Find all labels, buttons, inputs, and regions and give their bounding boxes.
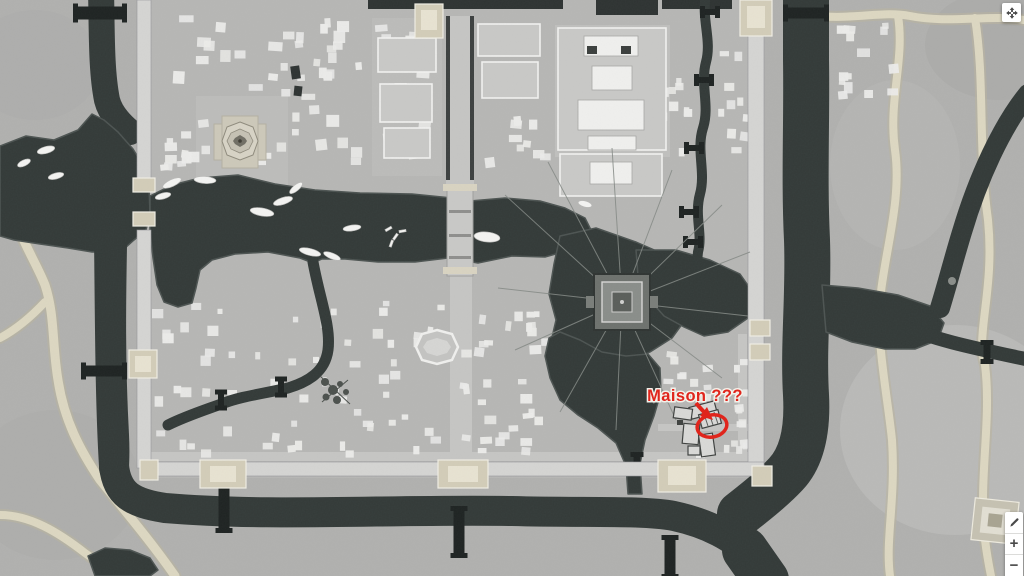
fullscreen-arrows-icon — [1006, 7, 1018, 19]
edit-button[interactable] — [1005, 512, 1023, 534]
paper-texture — [0, 0, 1024, 576]
map-control-stack: + − — [1005, 512, 1023, 576]
pencil-icon — [1009, 517, 1020, 528]
map-screen: Maison ??? + − — [0, 0, 1024, 576]
game-map[interactable]: Maison ??? — [0, 0, 1024, 576]
annotation-label: Maison ??? — [647, 387, 743, 405]
fullscreen-button[interactable] — [1002, 3, 1021, 22]
zoom-out-button[interactable]: − — [1005, 555, 1023, 576]
zoom-in-button[interactable]: + — [1005, 533, 1023, 555]
